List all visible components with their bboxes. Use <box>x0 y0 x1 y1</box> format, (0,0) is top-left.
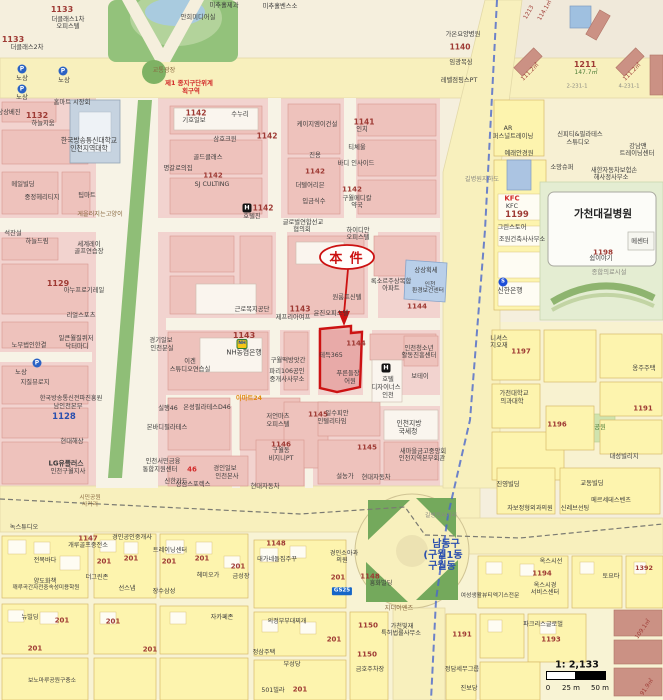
scale-tick: 50 m <box>591 684 609 692</box>
scale-bar-left <box>546 671 576 680</box>
map-viewport[interactable]: 1133더클래스1차오피스텔1133더클래스2차안희미디어실미추홀제과미추홀벤스… <box>0 0 663 700</box>
scale-tick: 25 m <box>562 684 580 692</box>
scale-ratio: 1: 2,133 <box>555 660 599 671</box>
scale-tick: 0 <box>546 684 550 692</box>
scale-bar-right <box>576 671 606 680</box>
map-scale: 1: 2,133 0 25 m 50 m <box>0 0 663 700</box>
